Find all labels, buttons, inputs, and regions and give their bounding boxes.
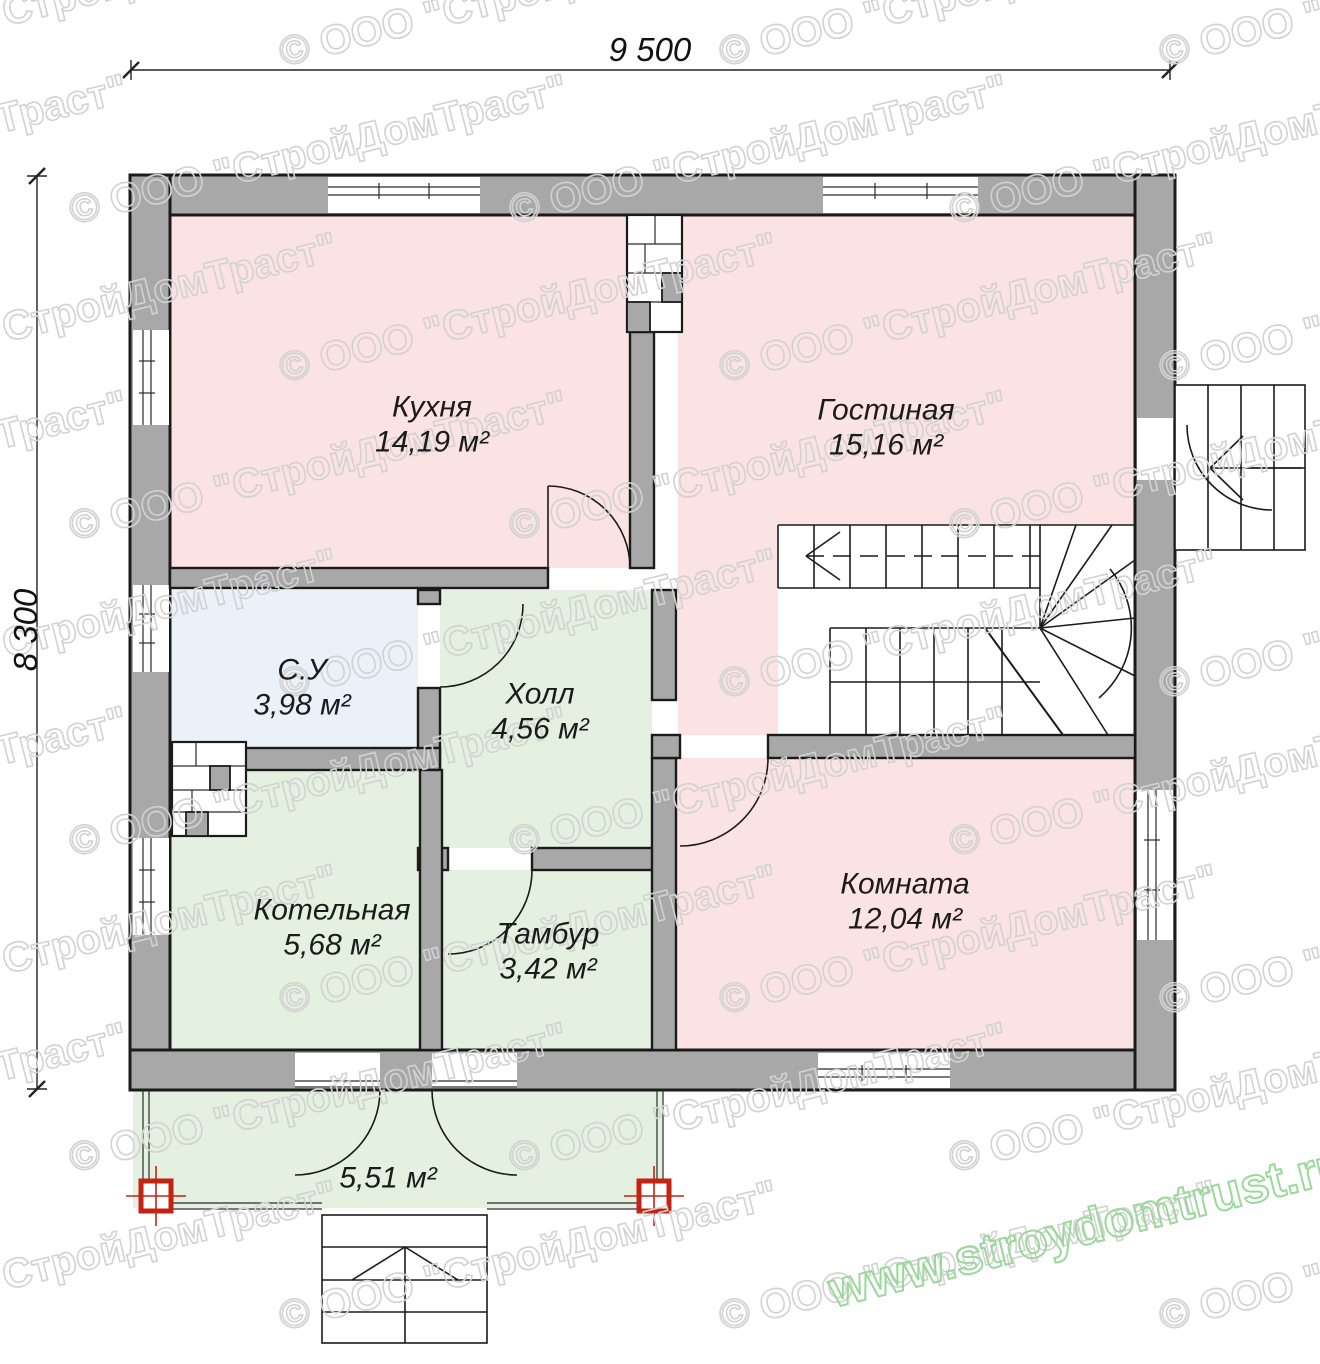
room-name: Гостиная bbox=[817, 393, 954, 428]
room-area: 15,16 м² bbox=[817, 428, 954, 463]
room-area: 5,51 м² bbox=[339, 1160, 436, 1195]
room-label-boiler: Котельная 5,68 м² bbox=[254, 893, 411, 964]
room-area: 3,42 м² bbox=[497, 952, 600, 987]
room-area: 14,19 м² bbox=[375, 425, 489, 460]
room-label-room: Комната 12,04 м² bbox=[840, 867, 969, 938]
room-name: Котельная bbox=[254, 893, 411, 928]
room-label-kitchen: Кухня 14,19 м² bbox=[375, 390, 489, 461]
room-label-vestibule: Тамбур 3,42 м² bbox=[497, 917, 600, 988]
floorplan-drawing bbox=[0, 0, 1320, 1364]
room-label-porch: 5,51 м² bbox=[339, 1160, 436, 1195]
room-label-hall: Холл 4,56 м² bbox=[491, 677, 588, 748]
room-area: 12,04 м² bbox=[840, 902, 969, 937]
room-name: Тамбур bbox=[497, 917, 600, 952]
room-area: 3,98 м² bbox=[253, 688, 350, 723]
entry-steps bbox=[322, 1215, 487, 1343]
room-name: Комната bbox=[840, 867, 969, 902]
room-area: 4,56 м² bbox=[491, 712, 588, 747]
floorplan-page: © ООО "СтройДомТраст"© ООО "СтройДомТрас… bbox=[0, 0, 1320, 1364]
chimney-left bbox=[172, 742, 246, 836]
room-name: Холл bbox=[491, 677, 588, 712]
chimney-top bbox=[627, 215, 682, 332]
room-area: 5,68 м² bbox=[254, 928, 411, 963]
room-name: С.У bbox=[253, 653, 350, 688]
room-label-living: Гостиная 15,16 м² bbox=[817, 393, 954, 464]
room-name: Кухня bbox=[375, 390, 489, 425]
room-label-bathroom: С.У 3,98 м² bbox=[253, 653, 350, 724]
dimension-top-label: 9 500 bbox=[609, 31, 692, 69]
right-landing bbox=[1175, 385, 1305, 550]
dimension-left-label: 8 300 bbox=[7, 589, 45, 672]
